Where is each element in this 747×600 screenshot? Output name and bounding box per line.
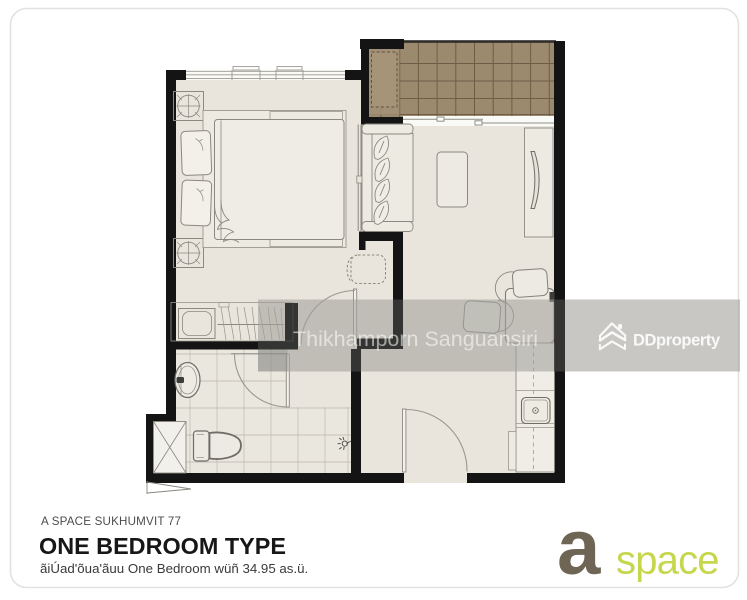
svg-text:ãiÚad'õua'ãuu One Bedroom wüñ: ãiÚad'õua'ãuu One Bedroom wüñ 34.95 as.ü… (40, 561, 308, 576)
svg-text:a: a (557, 503, 601, 591)
svg-text:space: space (616, 539, 719, 583)
svg-text:ONE BEDROOM TYPE: ONE BEDROOM TYPE (39, 533, 286, 559)
svg-text:A SPACE SUKHUMVIT 77: A SPACE SUKHUMVIT 77 (41, 515, 181, 528)
svg-text:DDproperty: DDproperty (633, 332, 721, 350)
svg-text:Thikhamporn Sanguansiri: Thikhamporn Sanguansiri (293, 327, 538, 351)
